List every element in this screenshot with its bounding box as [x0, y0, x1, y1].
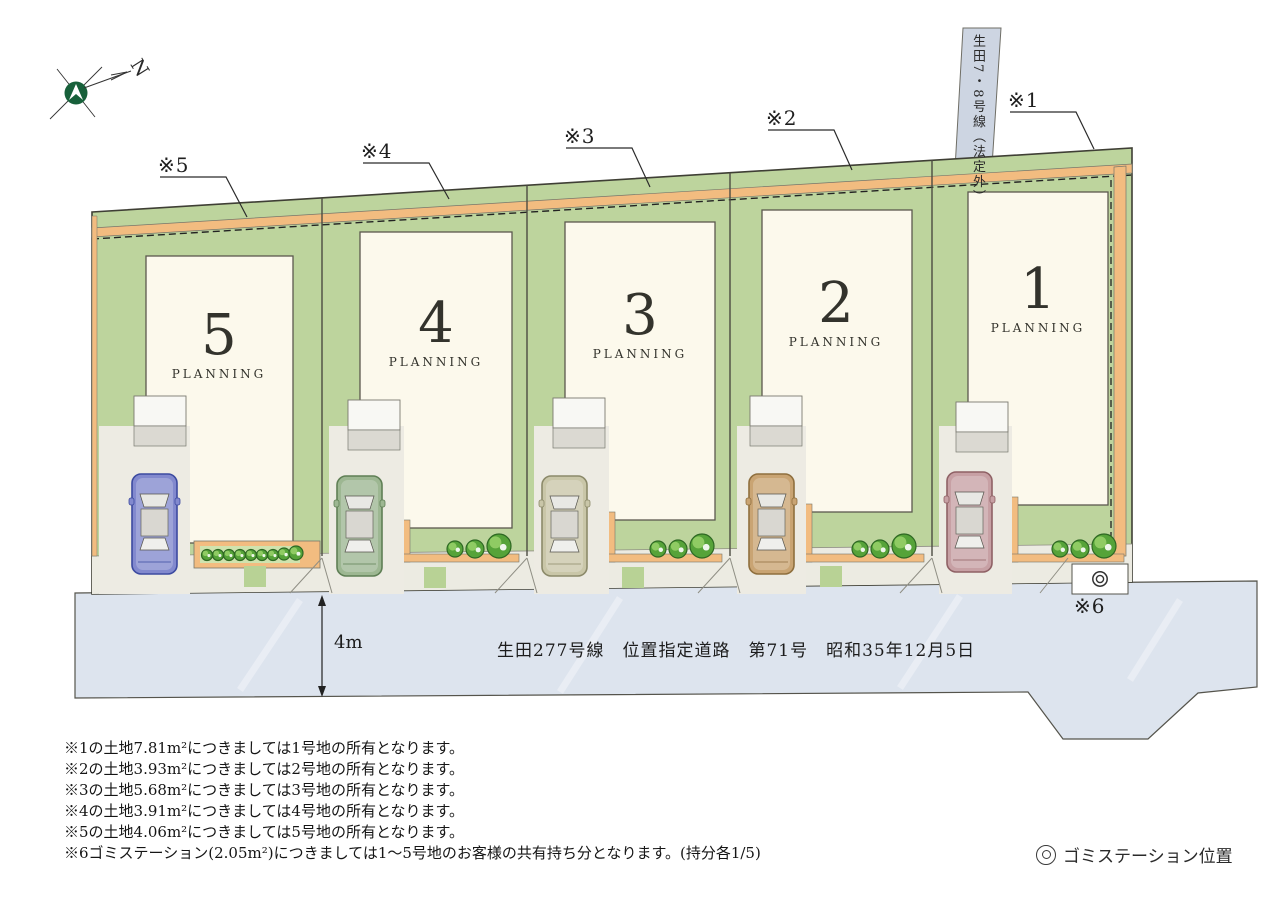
footnote-2: ※2の土地3.93m²につきましては2号地の所有となります。: [64, 759, 761, 780]
car: [129, 474, 180, 574]
lot-1-utility-box: [956, 402, 1008, 432]
front-road-name: 生田277号線 位置指定道路 第71号 昭和35年12月5日: [497, 636, 975, 661]
car: [746, 474, 797, 574]
bush: [257, 550, 268, 561]
setback-strip-left: [92, 216, 97, 556]
marker-6: ※6: [1074, 594, 1105, 618]
lot-4-utility-box: [348, 400, 400, 430]
bush: [871, 540, 889, 558]
bush: [268, 550, 279, 561]
footnotes: ※1の土地7.81m²につきましては1号地の所有となります。 ※2の土地3.93…: [64, 738, 761, 864]
garbage-station-legend-label: ゴミステーション位置: [1063, 842, 1233, 867]
lot-3-label: 3 PLANNING: [593, 288, 688, 361]
lot-3-green-pad: [622, 567, 644, 588]
bush: [852, 541, 868, 557]
lot-1-planning: PLANNING: [991, 321, 1086, 335]
road-width-dimension: 4m: [334, 632, 363, 653]
bush: [1092, 534, 1116, 558]
footnote-1: ※1の土地7.81m²につきましては1号地の所有となります。: [64, 738, 761, 759]
bush: [487, 534, 511, 558]
car: [539, 476, 590, 576]
north-road-label: 生田7・8号線（法定外）: [968, 34, 987, 174]
bush: [690, 534, 714, 558]
bush: [1052, 541, 1068, 557]
marker-1: ※1: [1008, 88, 1039, 112]
footnote-4: ※4の土地3.91m²につきましては4号地の所有となります。: [64, 801, 761, 822]
lot-2-number: 2: [789, 276, 884, 332]
lot-4-green-pad: [424, 567, 446, 588]
footnote-3: ※3の土地5.68m²につきましては3号地の所有となります。: [64, 780, 761, 801]
bush: [224, 550, 235, 561]
bush: [669, 540, 687, 558]
lot-3-number: 3: [593, 288, 688, 344]
bush: [289, 546, 303, 560]
marker-2: ※2: [766, 106, 797, 130]
bush: [1071, 540, 1089, 558]
marker-4: ※4: [361, 139, 392, 163]
lot-4-number: 4: [389, 296, 484, 352]
lot-5-number: 5: [172, 308, 267, 364]
lot-4-label: 4 PLANNING: [389, 296, 484, 369]
lot-5-planning: PLANNING: [172, 367, 267, 381]
marker-5: ※5: [158, 153, 189, 177]
bush: [650, 541, 666, 557]
lot-2-green-pad: [820, 566, 842, 587]
bush: [213, 550, 224, 561]
lot-3-planning: PLANNING: [593, 347, 688, 361]
setback-strip-right: [1114, 166, 1126, 556]
lot-5-green-pad: [244, 566, 266, 587]
lot-1-number: 1: [991, 262, 1086, 318]
car: [944, 472, 995, 572]
bush: [202, 550, 213, 561]
footnote-5: ※5の土地4.06m²につきましては5号地の所有となります。: [64, 822, 761, 843]
garbage-station-box: [1072, 564, 1128, 594]
lot-2-planning: PLANNING: [789, 335, 884, 349]
garbage-station-symbol-icon: [1036, 845, 1056, 865]
lot-1-label: 1 PLANNING: [991, 262, 1086, 335]
lot-3-utility-box: [553, 398, 605, 428]
footnote-6: ※6ゴミステーション(2.05m²)につきましては1～5号地のお客様の共有持ち分…: [64, 843, 761, 864]
marker-3: ※3: [564, 124, 595, 148]
lot-2-utility-box: [750, 396, 802, 426]
marker-leader-line: [1010, 112, 1094, 149]
bush: [278, 548, 290, 560]
bush: [246, 550, 257, 561]
lot-5-label: 5 PLANNING: [172, 308, 267, 381]
compass-icon: [50, 67, 131, 119]
marker-leader-line: [768, 130, 852, 170]
garbage-station-legend: ゴミステーション位置: [1036, 842, 1233, 867]
site-plan-page: N 生田7・8号線（法定外） ※5 ※4 ※3 ※2 ※1 ※6 1 PLANN…: [0, 0, 1280, 909]
lot-2-label: 2 PLANNING: [789, 276, 884, 349]
bush: [466, 540, 484, 558]
bush: [235, 550, 246, 561]
car: [334, 476, 385, 576]
lot-4-planning: PLANNING: [389, 355, 484, 369]
bush: [892, 534, 916, 558]
bush: [447, 541, 463, 557]
lot-5-utility-box: [134, 396, 186, 426]
